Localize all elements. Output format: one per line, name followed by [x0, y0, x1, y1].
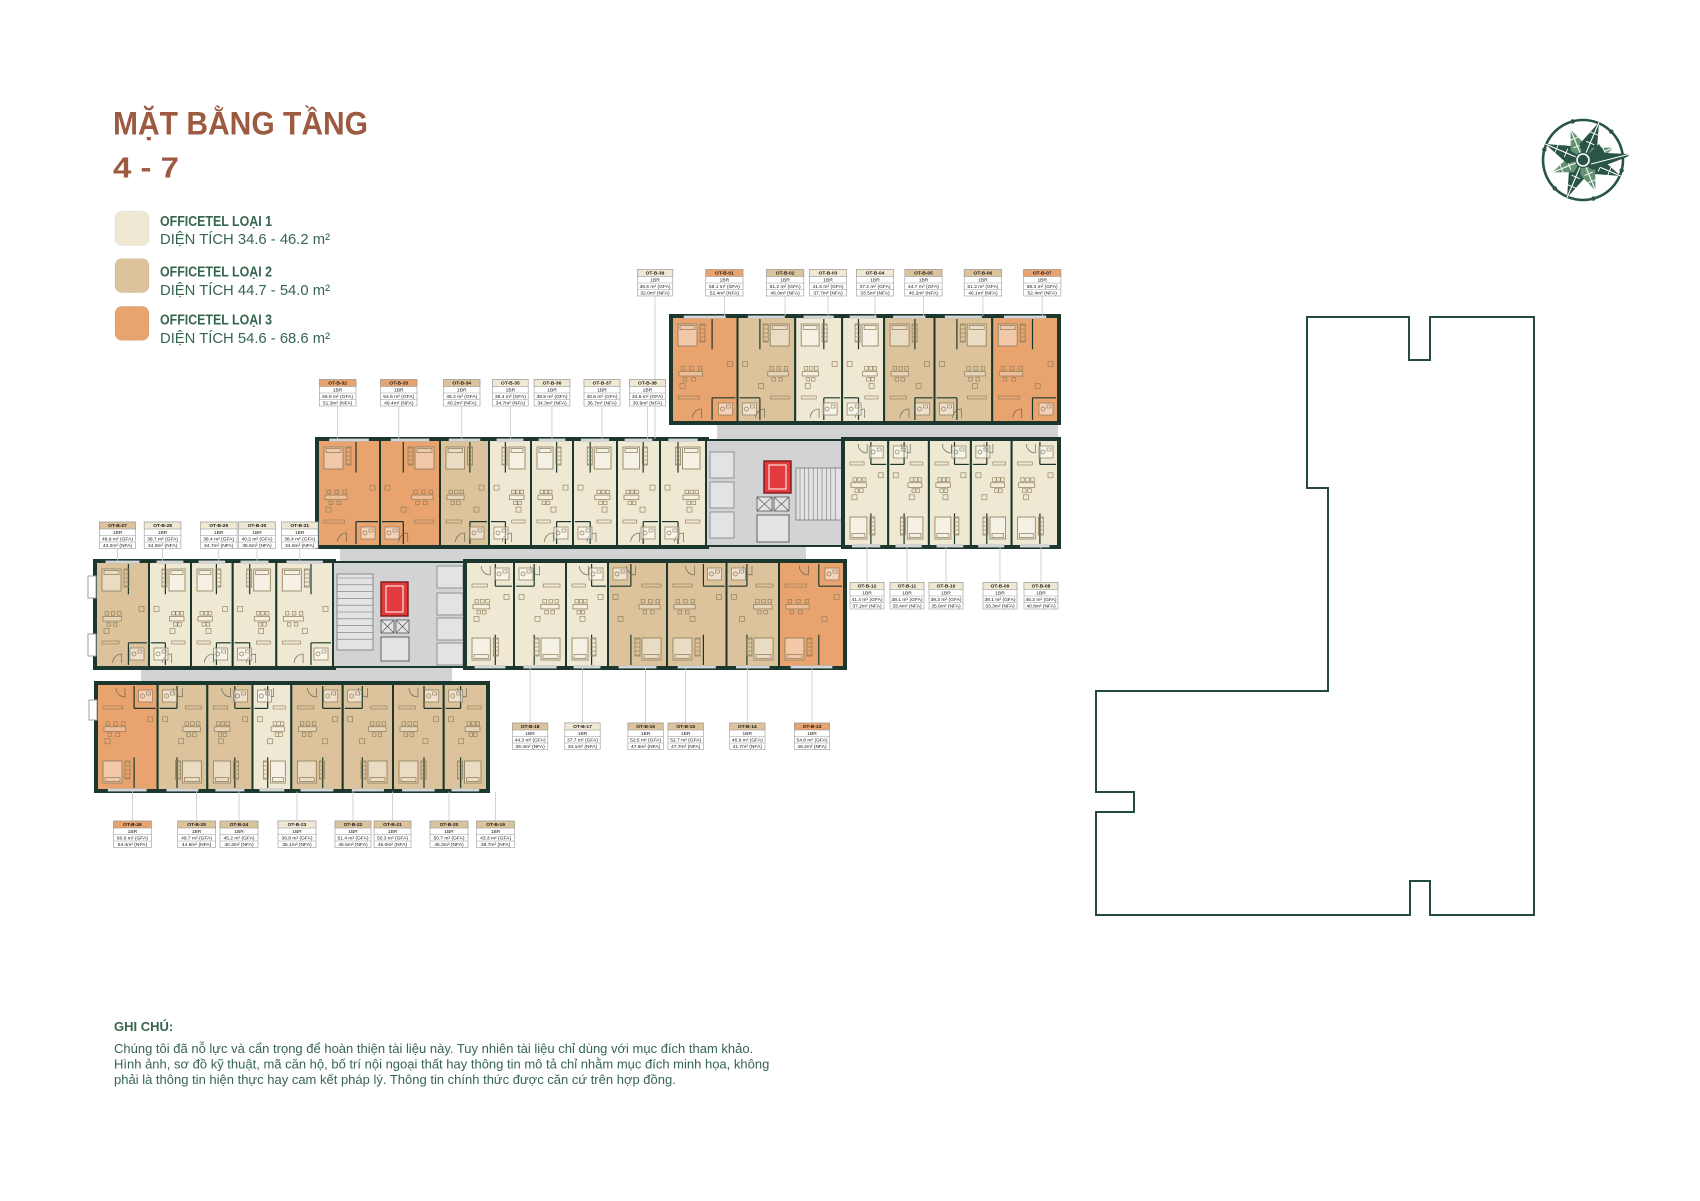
svg-text:OT-B-13: OT-B-13 [803, 724, 822, 730]
svg-text:32.0m² (NFA): 32.0m² (NFA) [640, 290, 670, 296]
svg-text:OT-B-32: OT-B-32 [328, 381, 347, 387]
svg-text:OT-B-35: OT-B-35 [501, 381, 520, 387]
svg-text:GHI CHÚ:: GHI CHÚ: [114, 1019, 173, 1034]
svg-text:OFFICETEL LOẠI 1: OFFICETEL LOẠI 1 [160, 213, 272, 230]
svg-text:52.4m² (NFA): 52.4m² (NFA) [1028, 290, 1058, 296]
svg-text:1BR: 1BR [870, 277, 880, 283]
svg-text:1BR: 1BR [643, 387, 653, 393]
svg-text:OT-B-37: OT-B-37 [593, 381, 612, 387]
svg-text:34.3m² (NFA): 34.3m² (NFA) [537, 400, 567, 406]
svg-text:37.7m² (NFA): 37.7m² (NFA) [813, 290, 843, 296]
svg-text:37.2 m² (GFA): 37.2 m² (GFA) [860, 284, 891, 290]
svg-text:37.2m² (NFA): 37.2m² (NFA) [852, 603, 882, 609]
svg-text:1BR: 1BR [1037, 277, 1047, 283]
svg-text:DIỆN TÍCH 44.7 - 54.0 m²: DIỆN TÍCH 44.7 - 54.0 m² [160, 282, 330, 299]
svg-text:46.5m² (NFA): 46.5m² (NFA) [338, 842, 368, 848]
svg-text:OT-B-24: OT-B-24 [230, 822, 249, 828]
svg-text:OT-B-15: OT-B-15 [676, 724, 695, 730]
svg-text:45.3m² (NFA): 45.3m² (NFA) [434, 842, 464, 848]
svg-text:51.4 m² (GFA): 51.4 m² (GFA) [338, 835, 369, 841]
svg-text:1BR: 1BR [348, 829, 358, 835]
svg-text:44.7 m² (GFA): 44.7 m² (GFA) [908, 284, 939, 290]
svg-text:OT-B-14: OT-B-14 [738, 724, 757, 730]
svg-text:4 - 7: 4 - 7 [113, 152, 179, 184]
svg-text:52.4m² (NFA): 52.4m² (NFA) [710, 290, 740, 296]
svg-text:48.9 m² (GFA): 48.9 m² (GFA) [102, 536, 133, 542]
svg-text:OT-B-31: OT-B-31 [290, 523, 309, 529]
svg-text:36.7m² (NFA): 36.7m² (NFA) [587, 400, 617, 406]
svg-text:OT-B-39: OT-B-39 [646, 271, 665, 277]
svg-text:40.8m² (NFA): 40.8m² (NFA) [1026, 603, 1056, 609]
svg-text:34.1m² (NFA): 34.1m² (NFA) [568, 744, 598, 750]
svg-text:52.7 m² (GFA): 52.7 m² (GFA) [670, 737, 701, 743]
svg-text:1BR: 1BR [192, 829, 202, 835]
svg-text:33.5m² (NFA): 33.5m² (NFA) [860, 290, 890, 296]
svg-text:40.2m² (NFA): 40.2m² (NFA) [447, 400, 477, 406]
svg-text:1BR: 1BR [919, 277, 929, 283]
svg-text:1BR: 1BR [113, 530, 123, 536]
svg-text:38.4 m² (GFA): 38.4 m² (GFA) [284, 536, 315, 542]
svg-text:49.7 m² (GFA): 49.7 m² (GFA) [181, 835, 212, 841]
svg-text:34.6 m² (GFA): 34.6 m² (GFA) [632, 394, 663, 400]
svg-text:44.3 m² (GFA): 44.3 m² (GFA) [515, 737, 546, 743]
svg-text:33.3m² (NFA): 33.3m² (NFA) [985, 603, 1015, 609]
svg-text:1BR: 1BR [388, 829, 398, 835]
svg-text:DIỆN TÍCH 34.6 - 46.2 m²: DIỆN TÍCH 34.6 - 46.2 m² [160, 231, 330, 248]
svg-text:41.7m² (NFA): 41.7m² (NFA) [733, 744, 763, 750]
svg-text:OT-B-07: OT-B-07 [1033, 271, 1052, 277]
svg-text:34.6m² (NFA): 34.6m² (NFA) [285, 543, 315, 549]
svg-text:49.4m² (NFA): 49.4m² (NFA) [384, 400, 414, 406]
svg-text:OT-B-19: OT-B-19 [486, 822, 505, 828]
svg-text:50.7 m² (GFA): 50.7 m² (GFA) [434, 835, 465, 841]
svg-text:phải là thông tin hiện thực ha: phải là thông tin hiện thực hay cam kết … [114, 1072, 676, 1087]
svg-text:38.4 m² (GFA): 38.4 m² (GFA) [203, 536, 234, 542]
svg-text:46.2 m² (GFA): 46.2 m² (GFA) [1026, 597, 1057, 603]
svg-text:51.3m² (NFA): 51.3m² (NFA) [323, 400, 353, 406]
svg-text:OT-B-02: OT-B-02 [776, 271, 795, 277]
svg-text:39.7m² (NFA): 39.7m² (NFA) [481, 842, 511, 848]
svg-text:1BR: 1BR [823, 277, 833, 283]
svg-text:60.6 m² (GFA): 60.6 m² (GFA) [117, 835, 148, 841]
svg-text:OT-B-34: OT-B-34 [452, 381, 471, 387]
svg-text:Hình ảnh, sơ đồ kỹ thuật, mã c: Hình ảnh, sơ đồ kỹ thuật, mã căn hộ, bố … [114, 1057, 769, 1072]
svg-text:56.9 m² (GFA): 56.9 m² (GFA) [322, 394, 353, 400]
svg-text:MẶT BẰNG TẦNG: MẶT BẰNG TẦNG [113, 106, 368, 142]
svg-text:OT-B-20: OT-B-20 [440, 822, 459, 828]
svg-text:35.6m² (NFA): 35.6m² (NFA) [931, 603, 961, 609]
svg-text:38.8 m² (GFA): 38.8 m² (GFA) [282, 835, 313, 841]
svg-text:58.1 m² (GFA): 58.1 m² (GFA) [709, 284, 740, 290]
svg-text:46.9 m² (GFA): 46.9 m² (GFA) [732, 737, 763, 743]
svg-text:1BR: 1BR [292, 829, 302, 835]
svg-text:1BR: 1BR [394, 387, 404, 393]
svg-text:1BR: 1BR [252, 530, 262, 536]
svg-text:DIỆN TÍCH 54.6 - 68.6 m²: DIỆN TÍCH 54.6 - 68.6 m² [160, 330, 330, 347]
svg-text:OT-B-25: OT-B-25 [187, 822, 206, 828]
svg-text:34.7m² (NFA): 34.7m² (NFA) [496, 400, 526, 406]
svg-text:1BR: 1BR [158, 530, 168, 536]
svg-text:OT-B-16: OT-B-16 [636, 724, 655, 730]
svg-text:58.3 m² (GFA): 58.3 m² (GFA) [1027, 284, 1058, 290]
svg-text:47.7m² (NFA): 47.7m² (NFA) [671, 744, 701, 750]
svg-text:43.3 m² (GFA): 43.3 m² (GFA) [480, 835, 511, 841]
svg-text:OT-B-36: OT-B-36 [543, 381, 562, 387]
svg-text:45.0m² (NFA): 45.0m² (NFA) [378, 842, 408, 848]
svg-text:35.6m² (NFA): 35.6m² (NFA) [242, 543, 272, 549]
svg-text:1BR: 1BR [720, 277, 730, 283]
svg-text:1BR: 1BR [780, 277, 790, 283]
svg-text:1BR: 1BR [214, 530, 224, 536]
svg-text:OT-B-01: OT-B-01 [715, 271, 734, 277]
svg-text:45.2 m² (GFA): 45.2 m² (GFA) [446, 394, 477, 400]
svg-text:1BR: 1BR [941, 590, 951, 596]
svg-text:38.1 m² (GFA): 38.1 m² (GFA) [892, 597, 923, 603]
svg-text:1BR: 1BR [491, 829, 501, 835]
svg-text:38.4 m² (GFA): 38.4 m² (GFA) [495, 394, 526, 400]
svg-text:OT-B-04: OT-B-04 [866, 271, 885, 277]
svg-text:1BR: 1BR [978, 277, 988, 283]
svg-text:OT-B-10: OT-B-10 [937, 584, 956, 590]
svg-text:46.0m² (NFA): 46.0m² (NFA) [770, 290, 800, 296]
svg-text:1BR: 1BR [295, 530, 305, 536]
svg-text:OT-B-05: OT-B-05 [914, 271, 933, 277]
svg-text:54.8 m² (GFA): 54.8 m² (GFA) [797, 737, 828, 743]
svg-text:1BR: 1BR [128, 829, 138, 835]
svg-text:OT-B-29: OT-B-29 [209, 523, 228, 529]
svg-text:OFFICETEL LOẠI 3: OFFICETEL LOẠI 3 [160, 311, 272, 328]
svg-text:1BR: 1BR [1036, 590, 1046, 596]
svg-text:OT-B-23: OT-B-23 [288, 822, 307, 828]
svg-text:39.4m² (NFA): 39.4m² (NFA) [515, 744, 545, 750]
svg-text:46.1m² (NFA): 46.1m² (NFA) [968, 290, 998, 296]
svg-text:36.5 m² (GFA): 36.5 m² (GFA) [640, 284, 671, 290]
svg-text:OT-B-26: OT-B-26 [123, 822, 142, 828]
svg-text:OT-B-21: OT-B-21 [383, 822, 402, 828]
svg-text:OT-B-06: OT-B-06 [974, 271, 993, 277]
svg-text:39.3 m² (GFA): 39.3 m² (GFA) [931, 597, 962, 603]
svg-text:54.6 m² (GFA): 54.6 m² (GFA) [383, 394, 414, 400]
svg-text:35.1m² (NFA): 35.1m² (NFA) [282, 842, 312, 848]
svg-text:52.5 m² (GFA): 52.5 m² (GFA) [630, 737, 661, 743]
svg-text:OT-B-08: OT-B-08 [1032, 584, 1051, 590]
svg-text:1BR: 1BR [743, 731, 753, 737]
svg-text:1BR: 1BR [681, 731, 691, 737]
svg-text:OT-B-38: OT-B-38 [638, 381, 657, 387]
svg-text:45.2 m² (GFA): 45.2 m² (GFA) [224, 835, 255, 841]
svg-text:1BR: 1BR [525, 731, 535, 737]
svg-text:49.2m² (NFA): 49.2m² (NFA) [797, 744, 827, 750]
svg-text:OT-B-09: OT-B-09 [991, 584, 1010, 590]
svg-text:33.4m² (NFA): 33.4m² (NFA) [892, 603, 922, 609]
svg-text:38.7 m² (GFA): 38.7 m² (GFA) [147, 536, 178, 542]
svg-text:1BR: 1BR [547, 387, 557, 393]
svg-text:OT-B-22: OT-B-22 [344, 822, 363, 828]
svg-text:OT-B-28: OT-B-28 [153, 523, 172, 529]
svg-text:1BR: 1BR [597, 387, 607, 393]
svg-text:51.2 m² (GFA): 51.2 m² (GFA) [967, 284, 998, 290]
svg-text:1BR: 1BR [862, 590, 872, 596]
svg-text:1BR: 1BR [444, 829, 454, 835]
svg-text:OT-B-03: OT-B-03 [819, 271, 838, 277]
svg-text:OT-B-33: OT-B-33 [389, 381, 408, 387]
svg-text:1BR: 1BR [995, 590, 1005, 596]
svg-text:40.2m² (NFA): 40.2m² (NFA) [909, 290, 939, 296]
svg-text:50.3 m² (GFA): 50.3 m² (GFA) [377, 835, 408, 841]
svg-text:1BR: 1BR [457, 387, 467, 393]
svg-text:Chúng tôi đã nỗ lực và cẩn trọ: Chúng tôi đã nỗ lực và cẩn trọng để hoàn… [114, 1041, 753, 1056]
svg-text:34.0m² (NFA): 34.0m² (NFA) [148, 543, 178, 549]
svg-text:44.8m² (NFA): 44.8m² (NFA) [182, 842, 212, 848]
svg-text:37.7 m² (GFA): 37.7 m² (GFA) [567, 737, 598, 743]
svg-text:51.2 m² (GFA): 51.2 m² (GFA) [770, 284, 801, 290]
svg-text:OT-B-27: OT-B-27 [108, 523, 127, 529]
svg-text:34.7m² (NFA): 34.7m² (NFA) [204, 543, 234, 549]
svg-text:38.1 m² (GFA): 38.1 m² (GFA) [985, 597, 1016, 603]
svg-text:40.6 m² (GFA): 40.6 m² (GFA) [587, 394, 618, 400]
svg-text:OFFICETEL LOẠI 2: OFFICETEL LOẠI 2 [160, 264, 272, 281]
svg-text:1BR: 1BR [333, 387, 343, 393]
svg-text:47.6m² (NFA): 47.6m² (NFA) [631, 744, 661, 750]
svg-text:38.9 m² (GFA): 38.9 m² (GFA) [537, 394, 568, 400]
svg-text:1BR: 1BR [578, 731, 588, 737]
svg-text:1BR: 1BR [506, 387, 516, 393]
svg-text:OT-B-11: OT-B-11 [898, 584, 917, 590]
svg-text:40.2 m² (GFA): 40.2 m² (GFA) [242, 536, 273, 542]
svg-text:OT-B-18: OT-B-18 [521, 724, 540, 730]
svg-text:1BR: 1BR [650, 277, 660, 283]
svg-text:1BR: 1BR [641, 731, 651, 737]
svg-text:41.4 m² (GFA): 41.4 m² (GFA) [852, 597, 883, 603]
svg-text:43.2m² (NFA): 43.2m² (NFA) [103, 543, 133, 549]
svg-text:1BR: 1BR [234, 829, 244, 835]
svg-text:OT-B-17: OT-B-17 [573, 724, 592, 730]
svg-text:1BR: 1BR [902, 590, 912, 596]
svg-text:OT-B-12: OT-B-12 [858, 584, 877, 590]
svg-text:41.6 m² (GFA): 41.6 m² (GFA) [813, 284, 844, 290]
svg-text:40.3m² (NFA): 40.3m² (NFA) [224, 842, 254, 848]
svg-text:54.4m² (NFA): 54.4m² (NFA) [118, 842, 148, 848]
svg-text:OT-B-30: OT-B-30 [248, 523, 267, 529]
svg-text:1BR: 1BR [807, 731, 817, 737]
svg-text:30.9m² (NFA): 30.9m² (NFA) [633, 400, 663, 406]
